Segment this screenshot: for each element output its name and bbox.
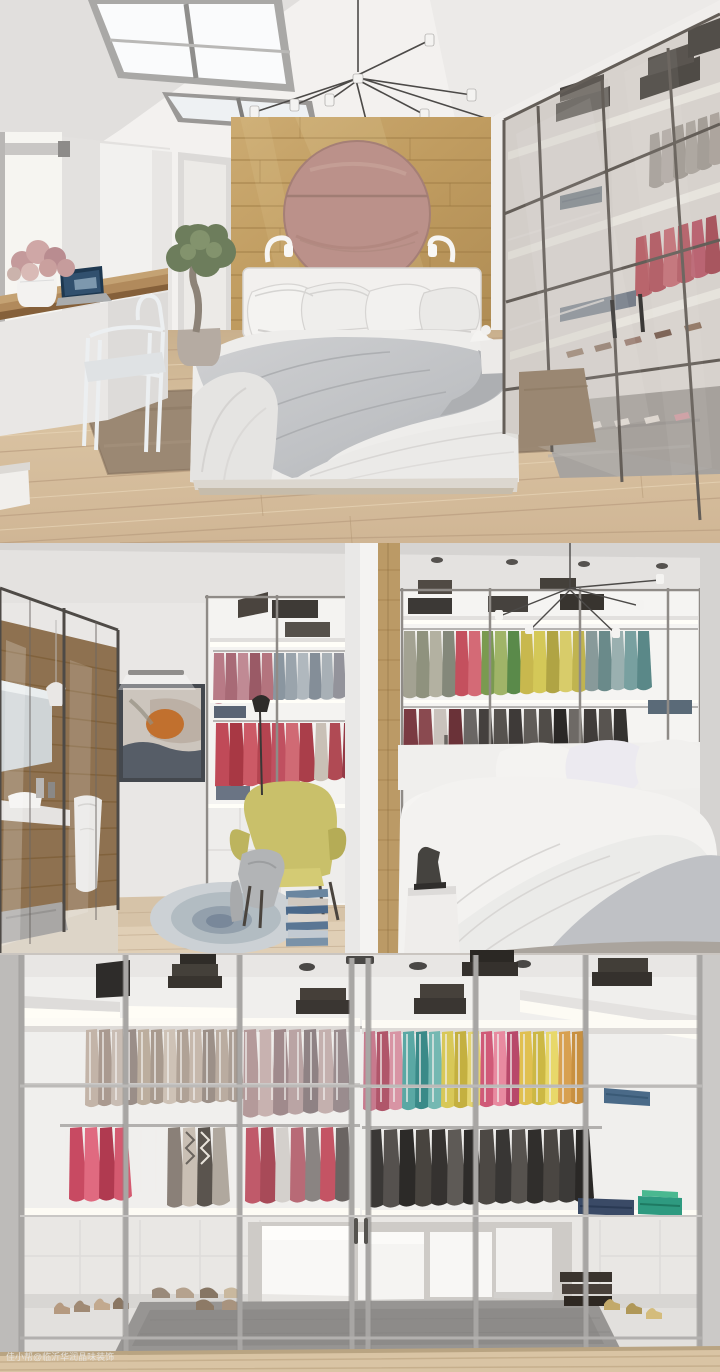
svg-text:佳小帮@临沂华润晶味装饰: 佳小帮@临沂华润晶味装饰 [6, 1351, 114, 1362]
